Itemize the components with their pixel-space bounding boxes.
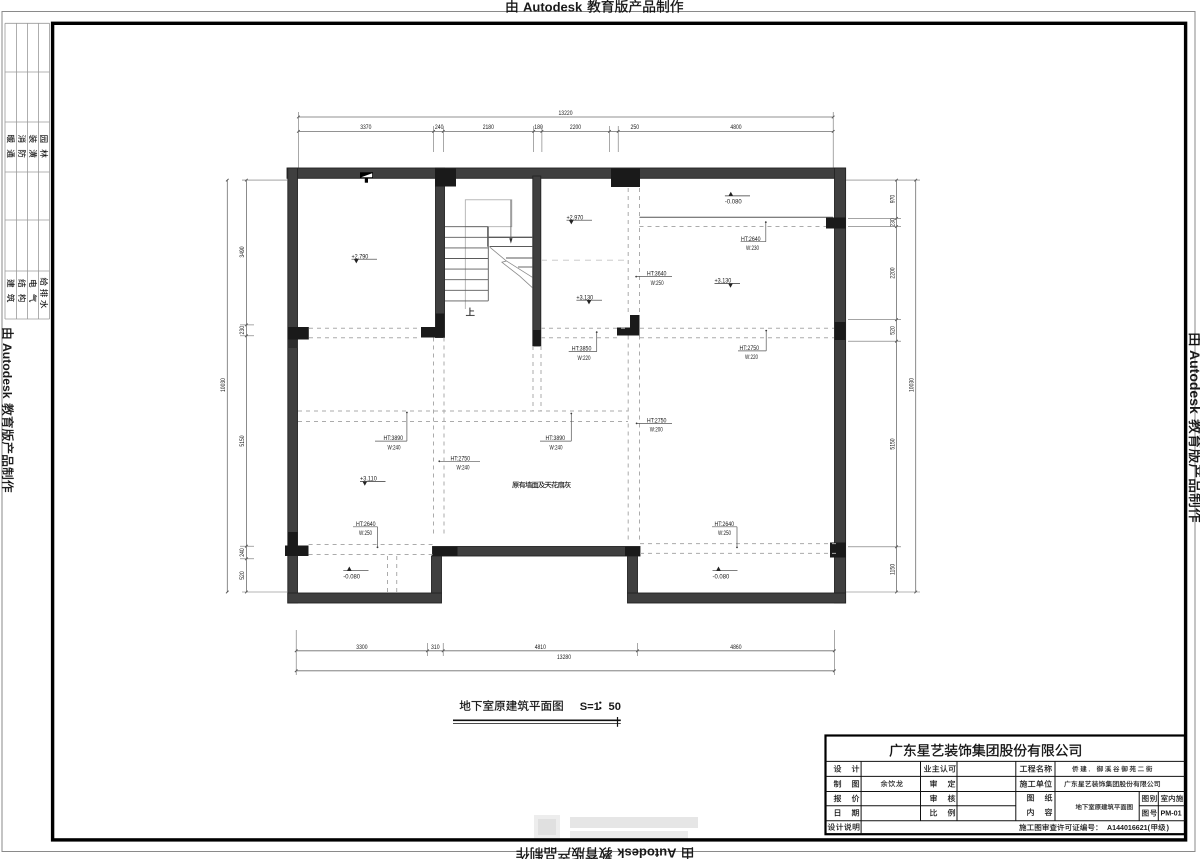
svg-text:2200: 2200 <box>570 124 582 131</box>
svg-text:3490: 3490 <box>239 246 246 258</box>
svg-text:HT:3890: HT:3890 <box>384 435 404 442</box>
svg-text:HT:3850: HT:3850 <box>572 346 592 353</box>
svg-text:13280: 13280 <box>557 654 571 661</box>
svg-text:Autodesk: Autodesk <box>0 343 14 399</box>
svg-text:3370: 3370 <box>360 124 372 131</box>
svg-text:HT:2640: HT:2640 <box>356 521 376 528</box>
svg-text:PM-01: PM-01 <box>1161 809 1182 818</box>
svg-text:4800: 4800 <box>730 124 742 131</box>
svg-text:10030: 10030 <box>909 378 916 392</box>
svg-text:3300: 3300 <box>356 644 368 651</box>
svg-text:-0.080: -0.080 <box>713 573 730 580</box>
svg-text:4860: 4860 <box>730 644 742 651</box>
svg-text:4810: 4810 <box>535 644 547 651</box>
svg-text:W:230: W:230 <box>746 245 759 252</box>
svg-text:HT:2750: HT:2750 <box>451 455 471 462</box>
svg-text:5150: 5150 <box>889 438 896 450</box>
svg-text:Autodesk: Autodesk <box>523 0 583 15</box>
svg-text:310: 310 <box>431 644 440 651</box>
svg-text:W:220: W:220 <box>578 355 591 362</box>
svg-text:970: 970 <box>889 194 896 203</box>
svg-text:W:240: W:240 <box>388 444 401 451</box>
svg-text:2180: 2180 <box>483 124 495 131</box>
svg-text:W:240: W:240 <box>457 465 470 472</box>
svg-text:W:250: W:250 <box>359 530 372 537</box>
svg-text:A144016621(: A144016621( <box>1107 823 1150 832</box>
svg-text:-0.080: -0.080 <box>343 573 360 580</box>
svg-text:-0.080: -0.080 <box>725 199 742 206</box>
svg-text:13220: 13220 <box>559 110 573 117</box>
svg-text:W:250: W:250 <box>718 530 731 537</box>
svg-text:W:240: W:240 <box>550 444 563 451</box>
svg-text:250: 250 <box>631 124 640 131</box>
svg-text:230: 230 <box>889 218 896 227</box>
svg-text:Autodesk: Autodesk <box>617 846 677 859</box>
svg-text:50: 50 <box>609 701 621 713</box>
svg-text:HT:3640: HT:3640 <box>647 271 667 278</box>
svg-text:520: 520 <box>889 326 896 335</box>
svg-text:W:250: W:250 <box>651 280 664 287</box>
svg-text:Autodesk: Autodesk <box>1187 350 1200 414</box>
svg-text:1150: 1150 <box>889 563 896 575</box>
svg-text:520: 520 <box>239 571 246 580</box>
svg-text:S=1: S=1 <box>580 701 600 713</box>
svg-text:5150: 5150 <box>239 435 246 447</box>
svg-text:2200: 2200 <box>889 267 896 279</box>
svg-text:HT:2640: HT:2640 <box>715 521 735 528</box>
svg-text:10030: 10030 <box>220 378 227 392</box>
svg-text:HT:2750: HT:2750 <box>647 418 667 425</box>
svg-text:W:200: W:200 <box>650 427 663 434</box>
svg-text:230: 230 <box>239 326 246 335</box>
svg-text:HT:3890: HT:3890 <box>546 435 566 442</box>
svg-text:W:220: W:220 <box>745 354 758 361</box>
svg-text:HT:2750: HT:2750 <box>740 345 760 352</box>
svg-text:240: 240 <box>435 124 444 131</box>
svg-text:240: 240 <box>239 548 246 557</box>
svg-text:HT:2640: HT:2640 <box>741 236 761 243</box>
